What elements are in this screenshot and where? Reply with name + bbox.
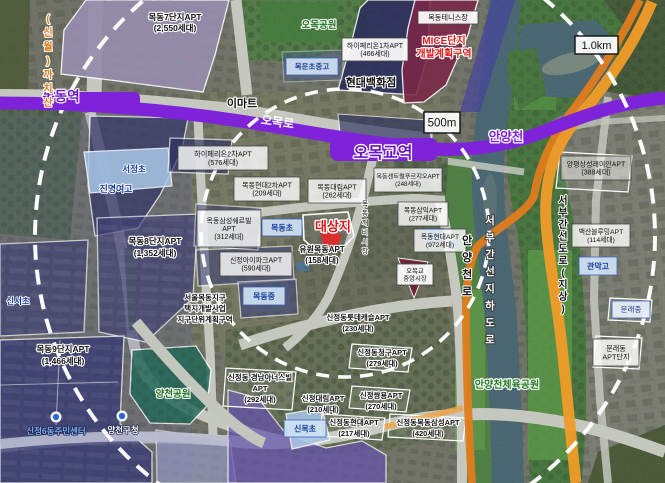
svg-text:(114세대): (114세대): [587, 235, 615, 244]
svg-text:까: 까: [43, 68, 53, 81]
svg-text:목동현대2차APT: 목동현대2차APT: [242, 180, 292, 189]
svg-text:신정아이파크APT: 신정아이파크APT: [230, 255, 283, 264]
svg-text:양: 양: [462, 250, 472, 264]
svg-text:선: 선: [485, 265, 495, 278]
svg-text:관악고: 관악고: [587, 261, 610, 271]
svg-text:APT단지: APT단지: [602, 352, 629, 361]
svg-text:신서초: 신서초: [6, 296, 30, 306]
svg-text:시: 시: [362, 238, 368, 246]
svg-text:(210세대): (210세대): [307, 404, 339, 414]
svg-text:신정동목동삼성APT: 신정동목동삼성APT: [396, 417, 460, 427]
svg-text:(270세대): (270세대): [365, 401, 397, 411]
svg-text:오목교역: 오목교역: [354, 144, 413, 162]
svg-text:양천공원: 양천공원: [156, 388, 191, 400]
svg-text:목동대림APT: 목동대림APT: [317, 183, 357, 191]
svg-text:목동삼성쉐르빌: 목동삼성쉐르빌: [206, 216, 251, 225]
svg-text:(388세대): (388세대): [581, 168, 610, 177]
svg-text:목동8단지APT: 목동8단지APT: [128, 236, 182, 246]
svg-text:백산블루밍APT: 백산블루밍APT: [579, 227, 623, 236]
svg-text:안양천: 안양천: [489, 129, 524, 144]
svg-text:(279세대): (279세대): [366, 358, 398, 368]
svg-text:신정동 경남아너스빌: 신정동 경남아너스빌: [228, 372, 292, 382]
svg-text:): ): [46, 56, 49, 67]
svg-text:안: 안: [462, 233, 472, 247]
svg-text:양천구청: 양천구청: [107, 425, 138, 435]
svg-text:(248세대): (248세대): [395, 180, 421, 188]
svg-text:APT: APT: [253, 384, 268, 393]
svg-text:대상지: 대상지: [315, 219, 351, 234]
svg-text:목동테니스장: 목동테니스장: [428, 13, 468, 22]
svg-text:(277세대): (277세대): [409, 213, 437, 222]
svg-text:(466세대): (466세대): [360, 49, 389, 58]
svg-text:서정초: 서정초: [122, 164, 146, 174]
svg-text:목동9단지APT: 목동9단지APT: [36, 344, 90, 354]
svg-text:신정동현대APT: 신정동현대APT: [329, 417, 379, 427]
svg-text:신정동롯데캐슬APT: 신정동롯데캐슬APT: [326, 312, 390, 322]
svg-text:안양천체육공원: 안양천체육공원: [475, 378, 539, 391]
svg-text:중앙시장: 중앙시장: [403, 274, 427, 283]
svg-text:(972세대): (972세대): [426, 240, 454, 249]
svg-text:(1,466세대): (1,466세대): [42, 356, 85, 366]
svg-text:(312세대): (312세대): [214, 232, 243, 241]
svg-text:동: 동: [362, 210, 369, 218]
svg-text:도: 도: [485, 317, 495, 329]
svg-text:오목교: 오목교: [406, 267, 424, 275]
svg-text:신정쌍용APT: 신정쌍용APT: [360, 390, 403, 400]
svg-text:장: 장: [362, 247, 369, 256]
svg-text:신정대림APT: 신정대림APT: [302, 393, 345, 403]
svg-text:신정6동주민센터: 신정6동주민센터: [26, 426, 85, 436]
svg-text:하이페리온1차APT: 하이페리온1차APT: [347, 41, 404, 50]
svg-text:상: 상: [558, 290, 568, 303]
svg-text:도: 도: [558, 243, 567, 255]
svg-text:문래중: 문래중: [621, 305, 642, 314]
svg-text:이마트: 이마트: [227, 96, 257, 110]
svg-text:목동7단지APT: 목동7단지APT: [148, 12, 202, 22]
svg-text:MICE단지: MICE단지: [422, 34, 465, 47]
svg-text:서: 서: [485, 214, 495, 227]
svg-text:비: 비: [362, 228, 368, 237]
svg-text:(262세대): (262세대): [322, 191, 351, 200]
svg-text:목운초중고: 목운초중고: [295, 61, 330, 71]
svg-text:진명여고: 진명여고: [99, 183, 132, 194]
svg-text:(1,352세대): (1,352세대): [134, 248, 177, 258]
svg-text:하: 하: [485, 299, 495, 312]
svg-text:치: 치: [43, 82, 52, 95]
svg-text:(158세대): (158세대): [305, 255, 339, 265]
svg-text:간: 간: [558, 218, 568, 231]
svg-text:신목초: 신목초: [294, 423, 317, 433]
svg-text:(420세대): (420세대): [412, 428, 444, 438]
svg-text:부: 부: [485, 232, 495, 244]
svg-text:(230세대): (230세대): [342, 323, 374, 333]
svg-text:신: 신: [43, 26, 52, 39]
svg-text:유원목동APT: 유원목동APT: [299, 244, 345, 254]
svg-text:APT: APT: [222, 226, 236, 233]
svg-text:(590세대): (590세대): [241, 264, 270, 273]
svg-text:월: 월: [43, 41, 52, 53]
svg-text:목동삼익APT: 목동삼익APT: [404, 205, 442, 214]
svg-text:간: 간: [485, 248, 495, 261]
svg-text:신정동청구APT: 신정동청구APT: [357, 347, 407, 357]
svg-text:(576세대): (576세대): [208, 158, 238, 167]
svg-text:선: 선: [558, 230, 567, 243]
svg-text:목동초: 목동초: [271, 223, 294, 232]
svg-text:오목공원: 오목공원: [302, 19, 337, 31]
svg-text:로: 로: [485, 334, 495, 346]
svg-text:로: 로: [558, 255, 567, 267]
svg-text:양평상성래미안APT: 양평상성래미안APT: [567, 159, 626, 168]
svg-text:500m: 500m: [428, 118, 457, 130]
svg-text:로: 로: [462, 285, 472, 298]
svg-text:(2,550세대): (2,550세대): [154, 23, 197, 33]
svg-text:서: 서: [558, 194, 567, 207]
svg-text:목동중: 목동중: [253, 292, 276, 301]
svg-text:서울목동지구: 서울목동지구: [184, 292, 225, 302]
svg-text:개발계획구역: 개발계획구역: [416, 47, 471, 60]
svg-text:현대백화점: 현대백화점: [346, 75, 397, 89]
svg-text:지: 지: [558, 278, 567, 291]
svg-text:천: 천: [462, 267, 472, 281]
svg-text:지구단위계획구역: 지구단위계획구역: [177, 314, 232, 324]
svg-text:1.0km: 1.0km: [582, 40, 612, 52]
svg-text:택지개발사업: 택지개발사업: [184, 303, 225, 313]
svg-text:지: 지: [485, 282, 495, 295]
svg-text:(217세대): (217세대): [338, 428, 370, 438]
svg-text:): ): [561, 304, 564, 315]
svg-text:깨: 깨: [362, 218, 368, 227]
svg-text:부: 부: [558, 207, 567, 219]
svg-text:목동센트럴푸르지오APT: 목동센트럴푸르지오APT: [376, 173, 439, 181]
svg-text:목동현대APT: 목동현대APT: [421, 233, 459, 241]
svg-text:(292세대): (292세대): [244, 394, 276, 404]
svg-text:(209세대): (209세대): [252, 189, 281, 198]
svg-text:산: 산: [43, 96, 53, 109]
svg-text:목: 목: [362, 200, 369, 208]
